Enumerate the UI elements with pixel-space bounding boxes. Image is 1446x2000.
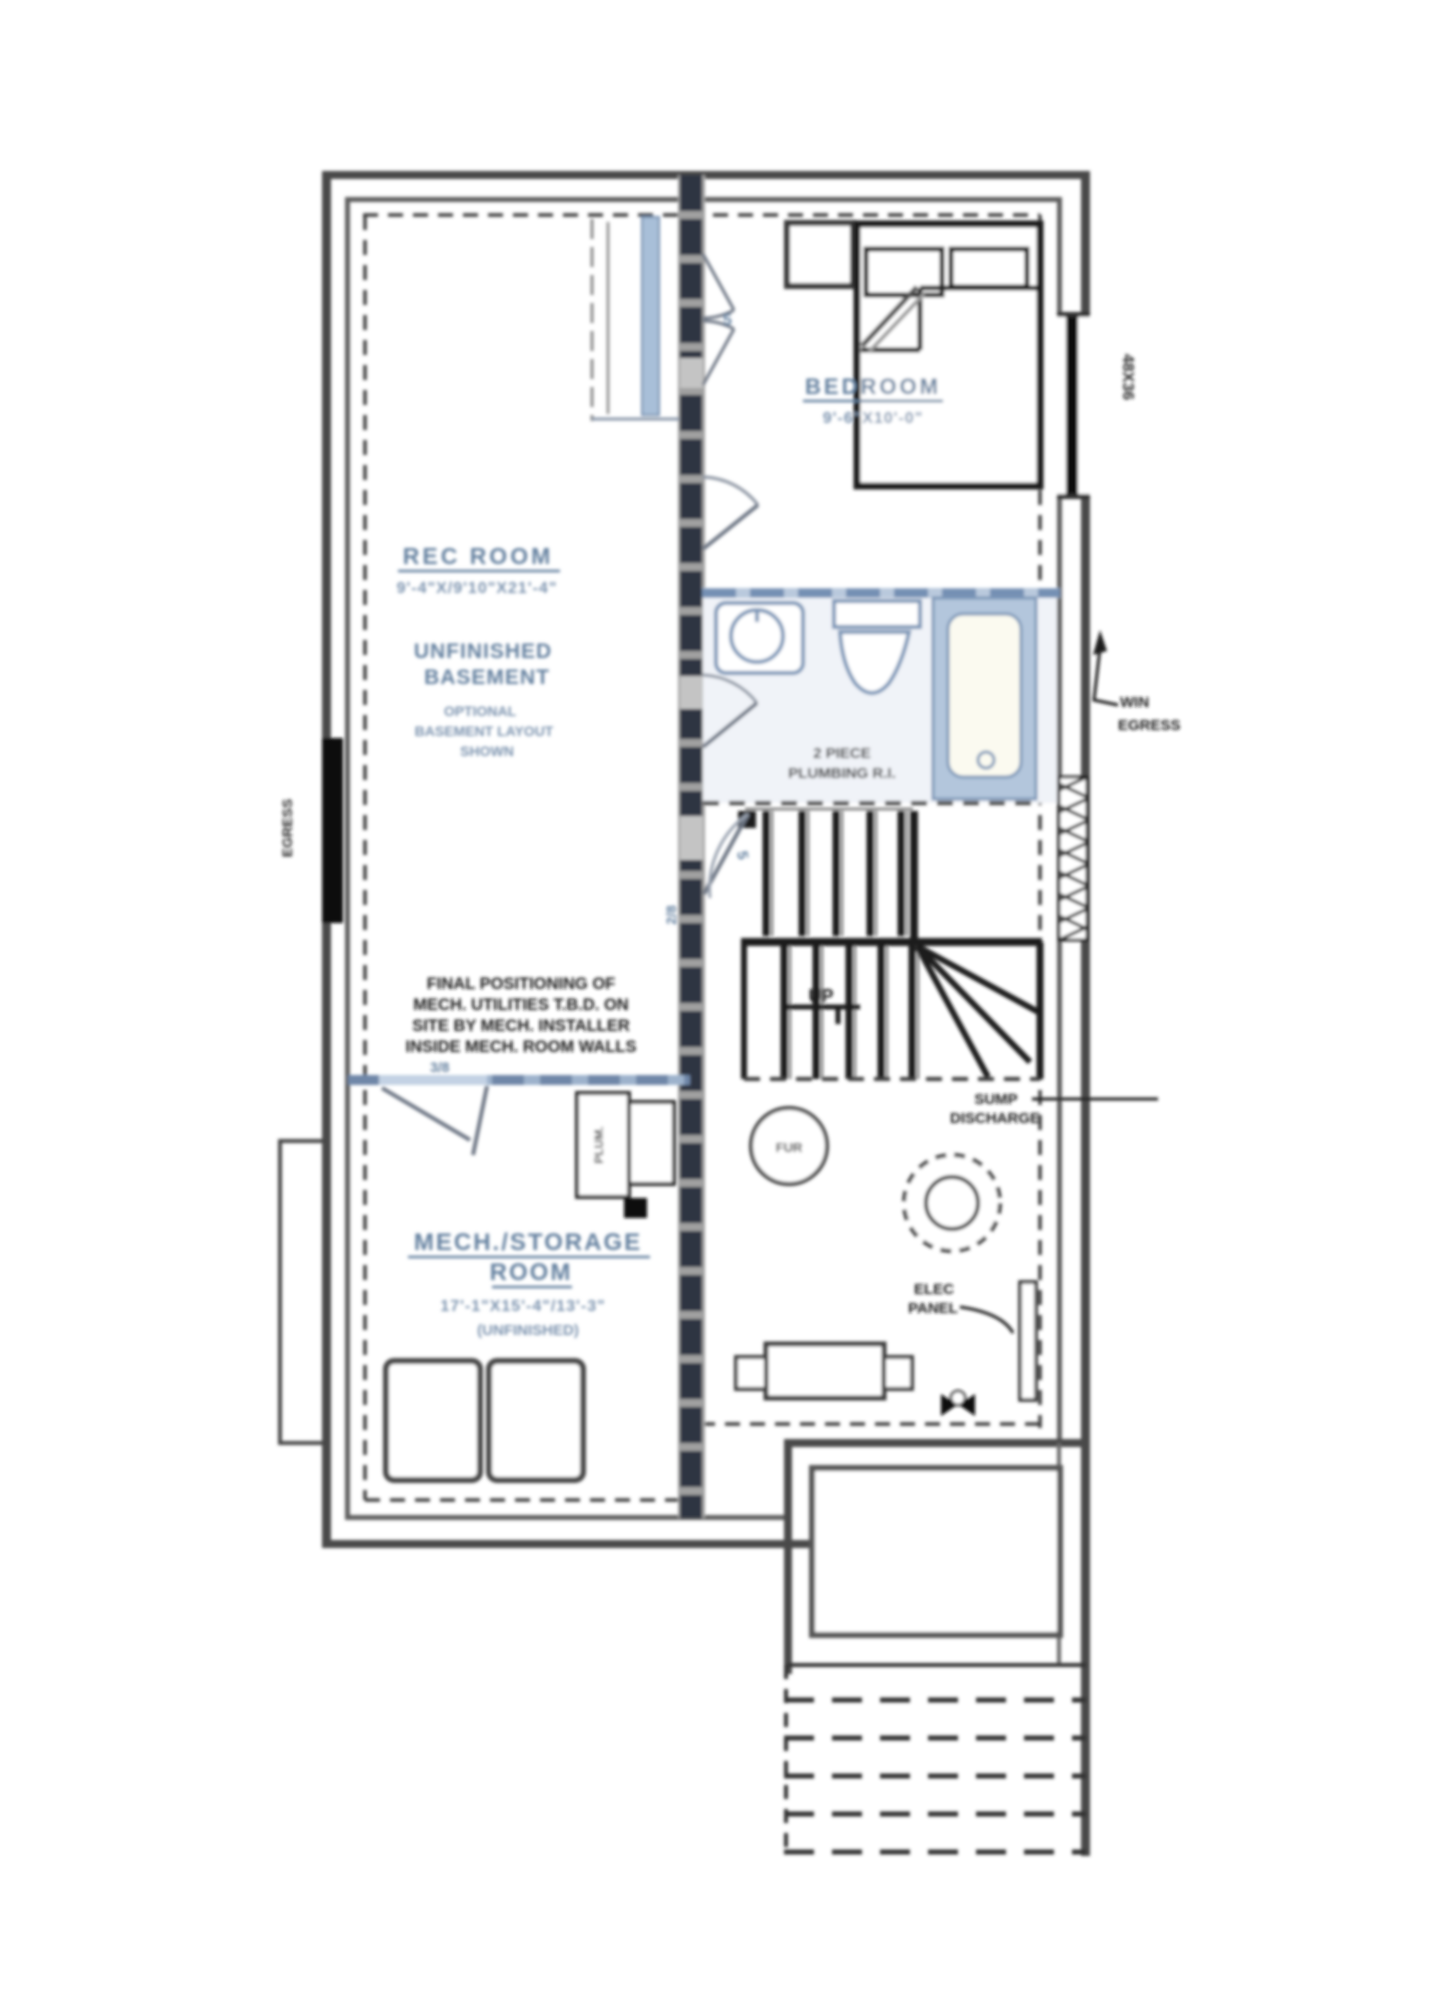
svg-text:FUR: FUR xyxy=(776,1140,803,1155)
svg-text:OPTIONAL: OPTIONAL xyxy=(444,703,517,719)
svg-text:2/8: 2/8 xyxy=(663,905,679,925)
svg-text:WIN: WIN xyxy=(1120,694,1149,711)
svg-text:9'-4"X/9'10"X21'-4": 9'-4"X/9'10"X21'-4" xyxy=(397,580,558,597)
svg-text:INSIDE MECH. ROOM WALLS: INSIDE MECH. ROOM WALLS xyxy=(406,1038,637,1056)
svg-text:BEDROOM: BEDROOM xyxy=(805,374,941,399)
svg-text:UNFINISHED: UNFINISHED xyxy=(414,640,552,663)
svg-text:UP: UP xyxy=(808,986,833,1006)
svg-text:DISCHARGE: DISCHARGE xyxy=(950,1110,1040,1127)
svg-text:MECH./STORAGE: MECH./STORAGE xyxy=(414,1229,642,1256)
svg-text:2 PIECE: 2 PIECE xyxy=(813,745,871,762)
svg-text:17'-1"X15'-4"/13'-3": 17'-1"X15'-4"/13'-3" xyxy=(440,1298,605,1315)
svg-text:PLUMBING R.I.: PLUMBING R.I. xyxy=(788,765,896,782)
svg-text:EGRESS: EGRESS xyxy=(279,799,295,857)
svg-text:MECH. UTILITIES T.B.D. ON: MECH. UTILITIES T.B.D. ON xyxy=(413,996,628,1014)
svg-text:ELEC: ELEC xyxy=(914,1281,954,1298)
svg-text:ROOM: ROOM xyxy=(490,1259,573,1286)
svg-text:FINAL POSITIONING OF: FINAL POSITIONING OF xyxy=(427,975,616,993)
svg-text:BASEMENT: BASEMENT xyxy=(424,666,550,689)
svg-text:SUMP: SUMP xyxy=(974,1091,1017,1108)
svg-text:48X36: 48X36 xyxy=(1119,354,1136,400)
svg-text:9'-6"X10'-0": 9'-6"X10'-0" xyxy=(823,410,924,427)
svg-text:BASEMENT LAYOUT: BASEMENT LAYOUT xyxy=(415,723,554,739)
svg-text:REC ROOM: REC ROOM xyxy=(403,543,554,569)
svg-text:EGRESS: EGRESS xyxy=(1118,717,1181,734)
svg-text:SITE BY MECH. INSTALLER: SITE BY MECH. INSTALLER xyxy=(412,1017,630,1035)
svg-text:3/8: 3/8 xyxy=(430,1059,450,1075)
svg-text:PLUM.: PLUM. xyxy=(592,1126,606,1163)
svg-text:PANEL: PANEL xyxy=(908,1300,958,1317)
svg-text:SHOWN: SHOWN xyxy=(460,743,514,759)
svg-text:5: 5 xyxy=(723,312,732,329)
svg-text:(UNFINISHED): (UNFINISHED) xyxy=(477,1322,579,1339)
